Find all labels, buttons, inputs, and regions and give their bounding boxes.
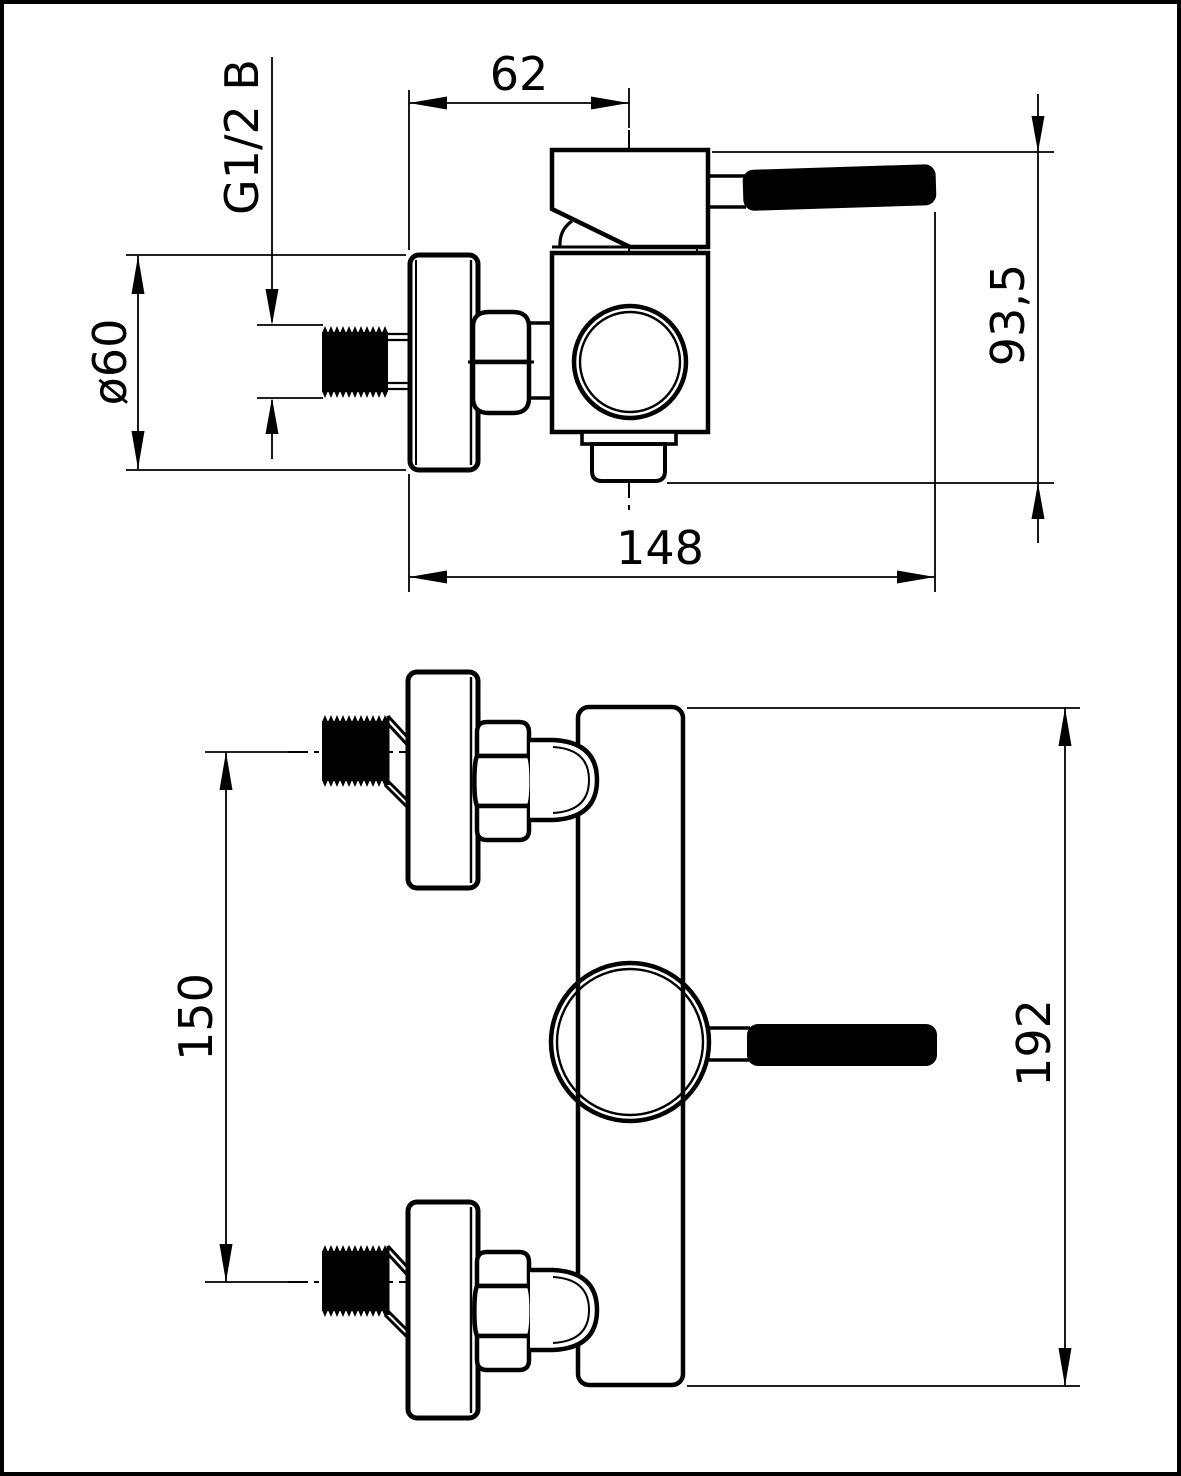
arrow-right: [897, 571, 935, 584]
arrow-up: [1032, 483, 1045, 519]
arrow-up: [132, 256, 145, 294]
side-view: [322, 130, 937, 512]
dimension-150: 150: [169, 752, 233, 1282]
dimension-thread-g12b: G1/2 B: [215, 57, 323, 459]
handle-stem-side: [708, 176, 746, 207]
arrow-left: [409, 97, 447, 110]
wall-inlet-bottom: [205, 1202, 597, 1418]
faucet-body-front: [578, 707, 683, 1385]
dim-label-diameter: ø60: [83, 319, 137, 406]
dim-label-150: 150: [169, 973, 223, 1061]
upper-housing: [552, 150, 708, 247]
dim-label-148: 148: [616, 521, 704, 575]
dim-label-192: 192: [1007, 999, 1061, 1087]
arrow-up: [1059, 708, 1072, 746]
handle-lever-front: [747, 1024, 937, 1066]
arrow-down: [220, 1244, 233, 1282]
front-view: [205, 672, 937, 1418]
dim-label-thread: G1/2 B: [215, 59, 269, 215]
arrow-right: [591, 97, 629, 110]
drawing-sheet: 62 G1/2 B ø60 93,5 148: [0, 0, 1181, 1476]
dim-label-62: 62: [490, 47, 549, 101]
arrow-up: [266, 398, 279, 434]
outlet-nipple: [592, 444, 665, 481]
wall-plate-side: [410, 255, 478, 470]
arrow-up: [220, 752, 233, 790]
arrow-down: [132, 431, 145, 469]
lever-slot-arc: [560, 221, 572, 247]
dim-label-93-5: 93,5: [981, 264, 1035, 366]
dimension-93-5: 93,5: [667, 94, 1054, 543]
handle-lever-side: [742, 164, 936, 211]
technical-drawing-canvas: 62 G1/2 B ø60 93,5 148: [0, 0, 1181, 1476]
wall-inlet-top: [205, 672, 597, 888]
arrow-down: [266, 289, 279, 325]
arrow-down: [1032, 116, 1045, 152]
handle-stem-front: [709, 1028, 750, 1060]
arrow-left: [409, 571, 447, 584]
arrow-down: [1059, 1348, 1072, 1386]
threaded-plug-side: [322, 326, 388, 398]
